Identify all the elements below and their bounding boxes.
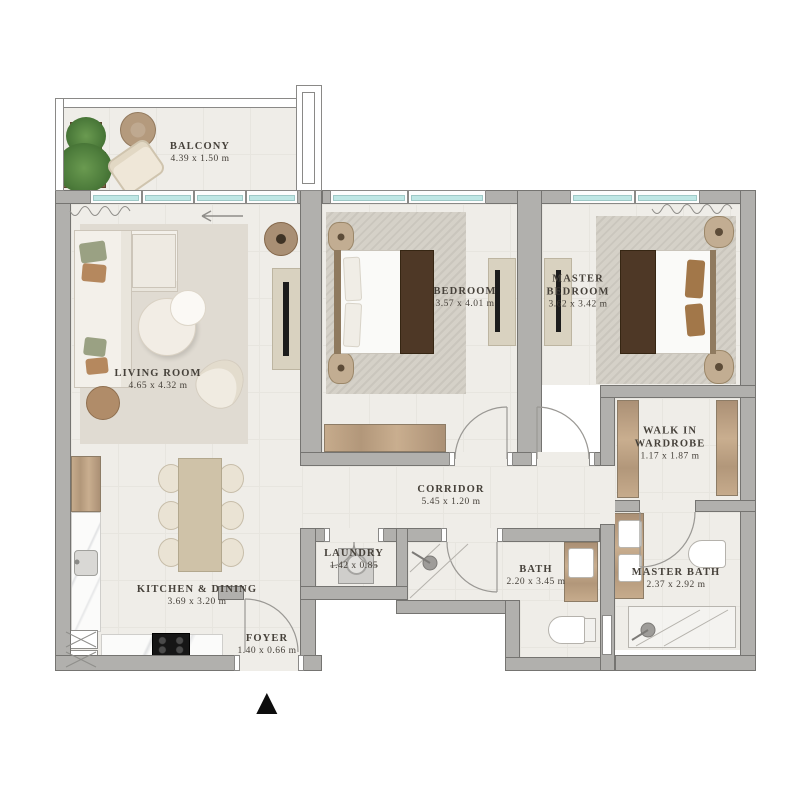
door-jamb — [497, 528, 503, 542]
doorway-master-bedroom — [537, 452, 589, 466]
door-jamb — [589, 452, 595, 466]
door-jamb — [441, 528, 447, 542]
doorway-wardrobe — [640, 500, 695, 512]
room-label-master-bedroom: MASTER BEDROOM 3.62 x 3.42 m — [539, 273, 617, 312]
master-toilet-bowl — [688, 540, 726, 568]
room-label-balcony: BALCONY 4.39 x 1.50 m — [135, 140, 265, 166]
room-name: BALCONY — [135, 140, 265, 153]
room-dims: 2.20 x 3.45 m — [481, 577, 591, 588]
room-name: WALK IN WARDROBE — [630, 425, 710, 451]
room-dims: 3.62 x 3.42 m — [539, 300, 617, 311]
wall — [55, 190, 71, 671]
throw-pillow — [79, 240, 108, 263]
window-living — [194, 190, 246, 204]
doorway-laundry — [330, 528, 378, 542]
nightstand — [328, 352, 354, 384]
room-dims: 5.45 x 1.20 m — [391, 497, 511, 508]
nightstand — [704, 350, 734, 384]
room-label-kitchen: KITCHEN & DINING 3.69 x 3.20 m — [122, 583, 272, 609]
room-dims: 2.37 x 2.92 m — [621, 580, 731, 591]
master-bed-headboard — [710, 250, 716, 354]
round-accent-table-center — [276, 234, 286, 244]
floor-plan: BALCONY 4.39 x 1.50 m LIVING ROOM 4.65 x… — [0, 0, 800, 800]
doorway-bedroom — [455, 452, 507, 466]
master-bed-cushion — [685, 259, 706, 298]
window-living — [90, 190, 142, 204]
bed-headboard — [334, 250, 341, 354]
wall — [600, 385, 756, 398]
wall — [615, 655, 756, 671]
room-dims: 4.65 x 4.32 m — [93, 381, 223, 392]
entrance-marker: ▲ — [249, 684, 285, 720]
bed-pillow — [343, 257, 362, 302]
throw-pillow — [83, 337, 107, 358]
room-dims: 1.17 x 1.87 m — [630, 452, 710, 463]
room-dims: 1.40 x 0.66 m — [207, 646, 327, 657]
balcony-slider-door — [246, 190, 298, 204]
bath-toilet-tank — [584, 618, 596, 642]
doorway-bath — [447, 528, 497, 542]
room-label-laundry: LAUNDRY 1.42 x 0.85 — [309, 547, 399, 573]
master-shower — [628, 606, 736, 648]
room-name: BEDROOM — [420, 285, 510, 298]
room-name: MASTER BATH — [621, 566, 731, 579]
room-dims: 3.57 x 4.01 m — [420, 299, 510, 310]
wall — [300, 586, 408, 600]
room-name: CORRIDOR — [391, 483, 511, 496]
kitchen-sink — [74, 550, 98, 576]
room-name: KITCHEN & DINING — [122, 583, 272, 596]
wall — [300, 452, 455, 466]
nightstand — [704, 216, 734, 248]
bedroom-dresser — [324, 424, 446, 452]
window-bedroom — [330, 190, 408, 204]
balcony-railing-left — [55, 98, 64, 191]
room-dims: 1.42 x 0.85 — [309, 561, 399, 572]
wall — [497, 528, 600, 542]
wall — [300, 190, 322, 466]
room-label-living: LIVING ROOM 4.65 x 4.32 m — [93, 367, 223, 393]
nightstand — [328, 222, 354, 252]
wall — [600, 390, 615, 466]
room-name: LIVING ROOM — [93, 367, 223, 380]
wardrobe-panel-right — [716, 400, 738, 496]
room-label-bedroom: BEDROOM 3.57 x 4.01 m — [420, 285, 510, 311]
wall — [740, 190, 756, 671]
room-label-foyer: FOYER 1.40 x 0.66 m — [207, 632, 327, 658]
bed-pillow — [343, 303, 362, 348]
master-bed-cushion — [685, 303, 706, 336]
window-master-bedroom — [635, 190, 700, 204]
balcony-railing-top — [55, 98, 299, 108]
tv-living — [283, 282, 289, 356]
master-bed-runner — [620, 250, 656, 354]
door-jamb — [449, 452, 455, 466]
master-bath-sink — [618, 520, 642, 548]
room-name: MASTER BEDROOM — [539, 273, 617, 299]
room-dims: 4.39 x 1.50 m — [135, 154, 265, 165]
window-master-bedroom — [570, 190, 635, 204]
room-label-bath: BATH 2.20 x 3.45 m — [481, 563, 591, 589]
doorway-master-bath — [600, 466, 615, 524]
throw-pillow — [81, 263, 106, 283]
door-jamb — [324, 528, 330, 542]
room-name: FOYER — [207, 632, 327, 645]
door-jamb — [507, 452, 513, 466]
wall — [695, 500, 756, 512]
door-jamb — [378, 528, 384, 542]
room-name: LAUNDRY — [309, 547, 399, 560]
window-bedroom — [408, 190, 486, 204]
wall — [517, 190, 542, 466]
stove — [152, 633, 190, 657]
dining-island — [178, 458, 222, 572]
room-label-corridor: CORRIDOR 5.45 x 1.20 m — [391, 483, 511, 509]
room-dims: 3.69 x 3.20 m — [122, 597, 272, 608]
wall — [396, 600, 520, 614]
room-label-wardrobe: WALK IN WARDROBE 1.17 x 1.87 m — [630, 425, 710, 464]
sofa-cushion — [132, 234, 176, 288]
window-living — [142, 190, 194, 204]
plant-large — [56, 143, 112, 193]
door-jamb — [531, 452, 537, 466]
coffee-table-small — [170, 290, 206, 326]
exterior-column-inner — [302, 92, 315, 184]
room-label-master-bath: MASTER BATH 2.37 x 2.92 m — [621, 566, 731, 592]
wall — [505, 657, 615, 671]
service-shaft — [602, 615, 612, 655]
bath-toilet-bowl — [548, 616, 586, 644]
kitchen-counter-wood — [71, 456, 101, 512]
wall — [378, 528, 447, 542]
room-name: BATH — [481, 563, 591, 576]
